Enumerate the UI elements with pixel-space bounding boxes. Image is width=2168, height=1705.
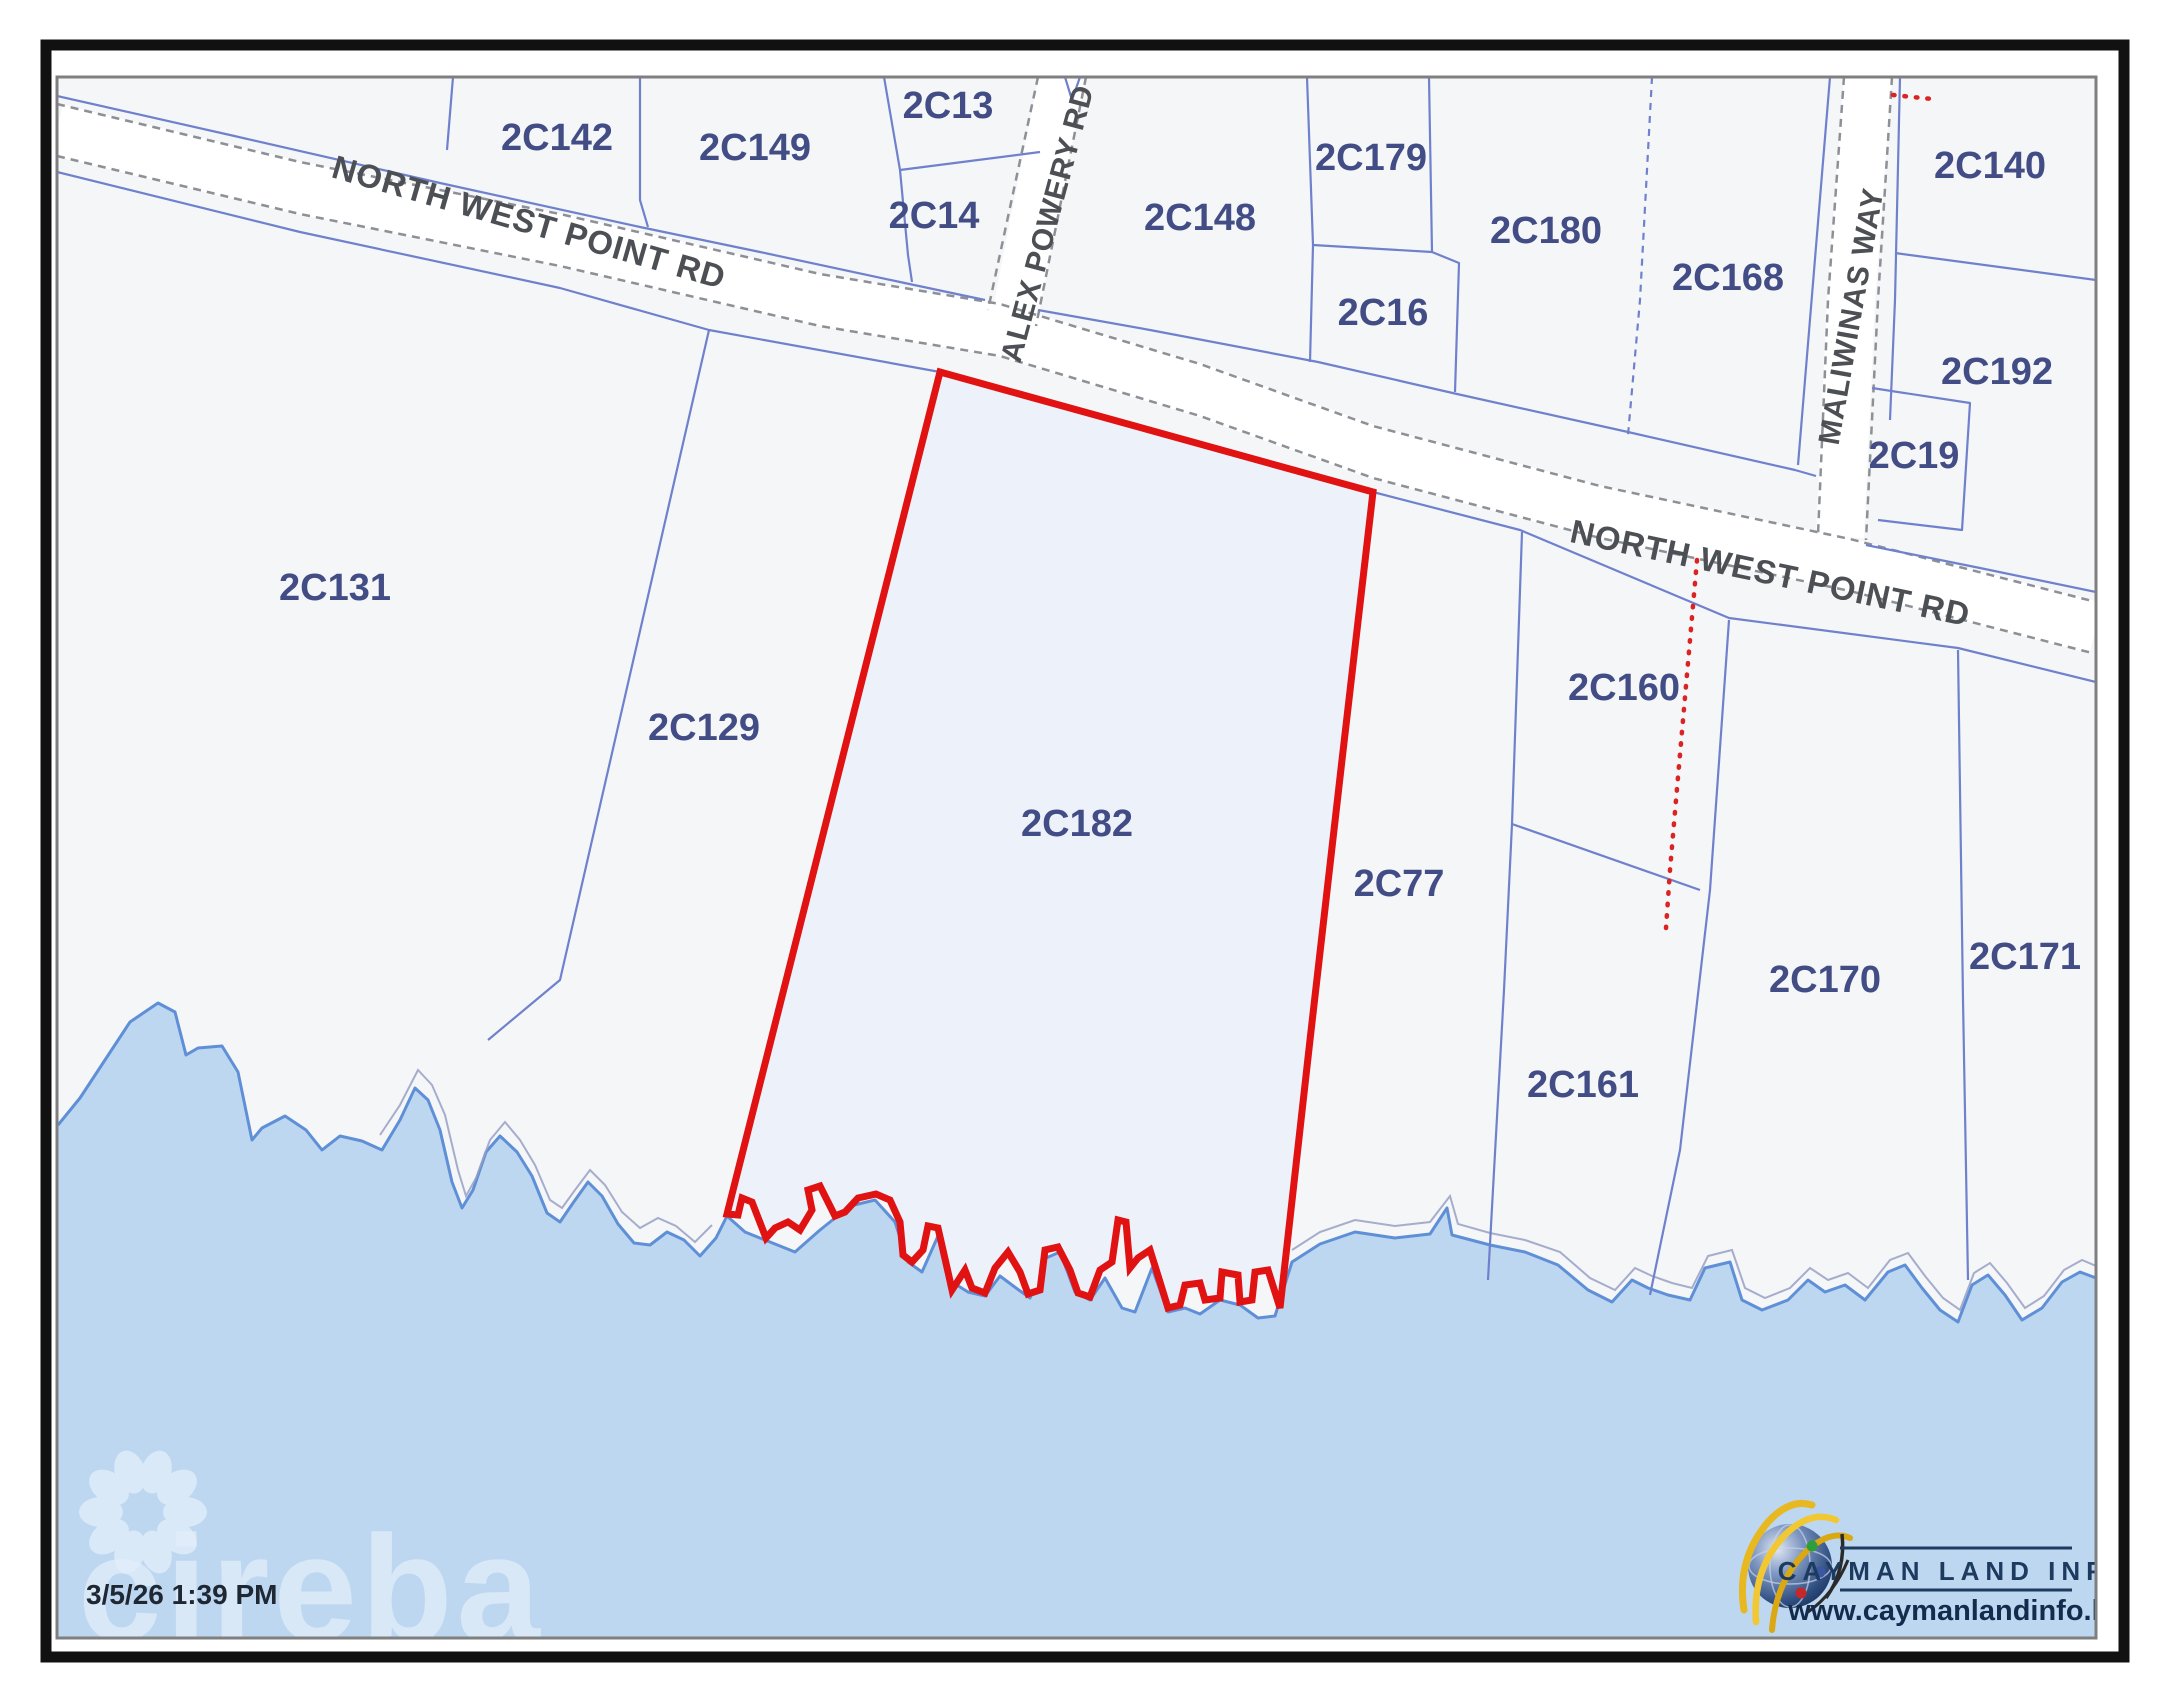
parcel-label-2C149[interactable]: 2C149 — [699, 127, 811, 169]
timestamp: 3/5/26 1:39 PM — [86, 1579, 277, 1610]
globe-dot-green — [1807, 1541, 1818, 1552]
parcel-label-2C77[interactable]: 2C77 — [1354, 863, 1445, 905]
parcel-label-2C19[interactable]: 2C19 — [1869, 435, 1960, 477]
logo-url[interactable]: www.caymanlandinfo.ky — [1787, 1595, 2124, 1627]
parcel-label-2C16[interactable]: 2C16 — [1338, 292, 1429, 334]
parcel-label-2C140[interactable]: 2C140 — [1934, 145, 2046, 187]
cadastral-map[interactable]: 2C1422C1492C132C142C1482C1792C162C1802C1… — [0, 0, 2168, 1700]
parcel-label-2C168[interactable]: 2C168 — [1672, 257, 1784, 299]
parcel-label-2C148[interactable]: 2C148 — [1144, 197, 1256, 239]
parcel-label-2C14[interactable]: 2C14 — [889, 195, 980, 237]
parcel-label-2C142[interactable]: 2C142 — [501, 117, 613, 159]
logo-title: CAYMAN LAND INFO — [1778, 1556, 2134, 1586]
parcel-label-2C131[interactable]: 2C131 — [279, 567, 391, 609]
parcel-label-2C160[interactable]: 2C160 — [1568, 667, 1680, 709]
parcel-label-2C170[interactable]: 2C170 — [1769, 959, 1881, 1001]
parcel-label-2C179[interactable]: 2C179 — [1315, 137, 1427, 179]
parcel-label-2C182[interactable]: 2C182 — [1021, 803, 1133, 845]
parcel-label-2C13[interactable]: 2C13 — [903, 85, 994, 127]
parcel-label-2C180[interactable]: 2C180 — [1490, 210, 1602, 252]
parcel-label-2C171[interactable]: 2C171 — [1969, 936, 2081, 978]
land-map-viewport: 2C1422C1492C132C142C1482C1792C162C1802C1… — [0, 0, 2168, 1700]
parcel-label-2C129[interactable]: 2C129 — [648, 707, 760, 749]
parcel-label-2C192[interactable]: 2C192 — [1941, 351, 2053, 393]
parcel-label-2C161[interactable]: 2C161 — [1527, 1064, 1639, 1106]
